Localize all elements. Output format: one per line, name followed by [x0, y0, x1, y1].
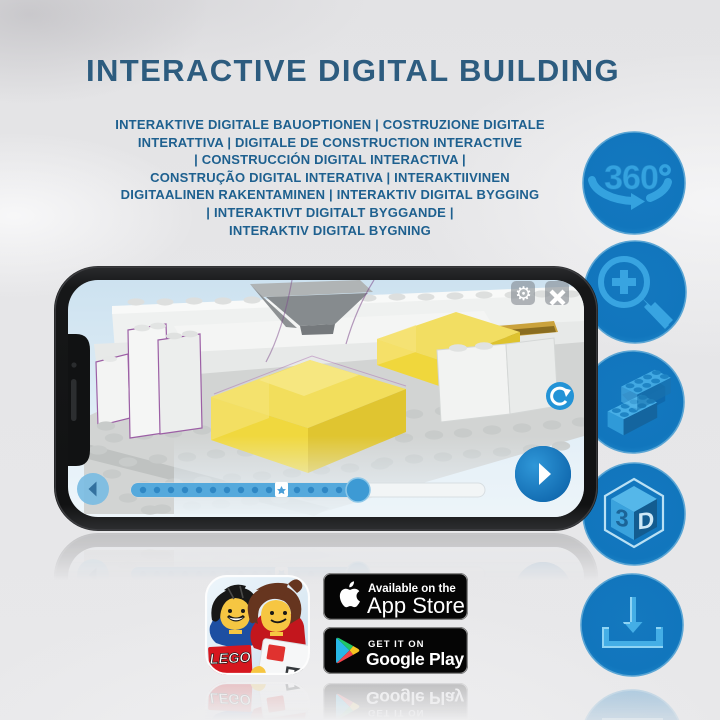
svg-text:3: 3 [615, 504, 628, 533]
svg-text:D: D [638, 506, 655, 534]
svg-text:LEGO: LEGO [209, 650, 252, 668]
svg-text:App Store: App Store [367, 593, 465, 618]
svg-text:Google Play: Google Play [366, 649, 464, 669]
svg-text:⚙: ⚙ [515, 284, 532, 305]
svg-text:360: 360 [604, 159, 658, 197]
